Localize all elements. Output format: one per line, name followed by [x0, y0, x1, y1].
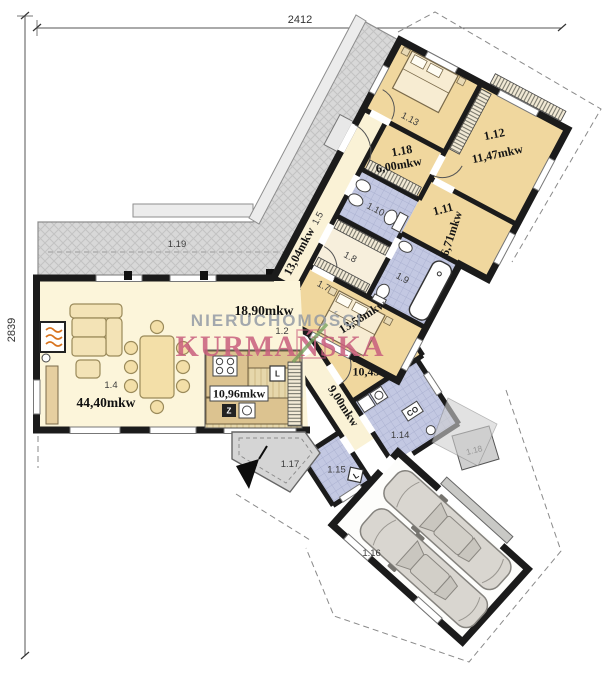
kitchen-area-label: 10,96mkw [213, 387, 266, 401]
dimension-top-label: 2412 [288, 14, 312, 26]
watermark: NIERUCHOMOŚCI KURMAŃSKA [176, 311, 385, 363]
room-1-17-label: 1.17 [281, 459, 300, 470]
watermark-line1: NIERUCHOMOŚCI [191, 311, 363, 330]
room-1-4-label: 1.4 [104, 380, 117, 391]
room-1-15-label: 1.15 [327, 464, 346, 475]
fridge-l-marker: L [275, 370, 280, 379]
room-1-14-label: 1.14 [391, 430, 410, 441]
room-1-4-area-label: 44,40mkw [77, 395, 136, 410]
sink-z-marker: Z [227, 407, 232, 416]
dimension-left-label: 2839 [6, 318, 18, 342]
terrace-1-17: 1.17 [232, 432, 320, 492]
dishwasher-icon [239, 403, 255, 418]
pantry-shelves-icon [288, 362, 301, 426]
floor-plan-page: 2412 2839 1.19 [0, 0, 608, 680]
room-1-16-label: 1.16 [362, 548, 381, 559]
cabinet-icon [46, 366, 58, 424]
room-1-19-label: 1.19 [168, 239, 187, 250]
watermark-line2: KURMAŃSKA [176, 330, 385, 363]
floor-plan: 2412 2839 1.19 [0, 0, 608, 680]
